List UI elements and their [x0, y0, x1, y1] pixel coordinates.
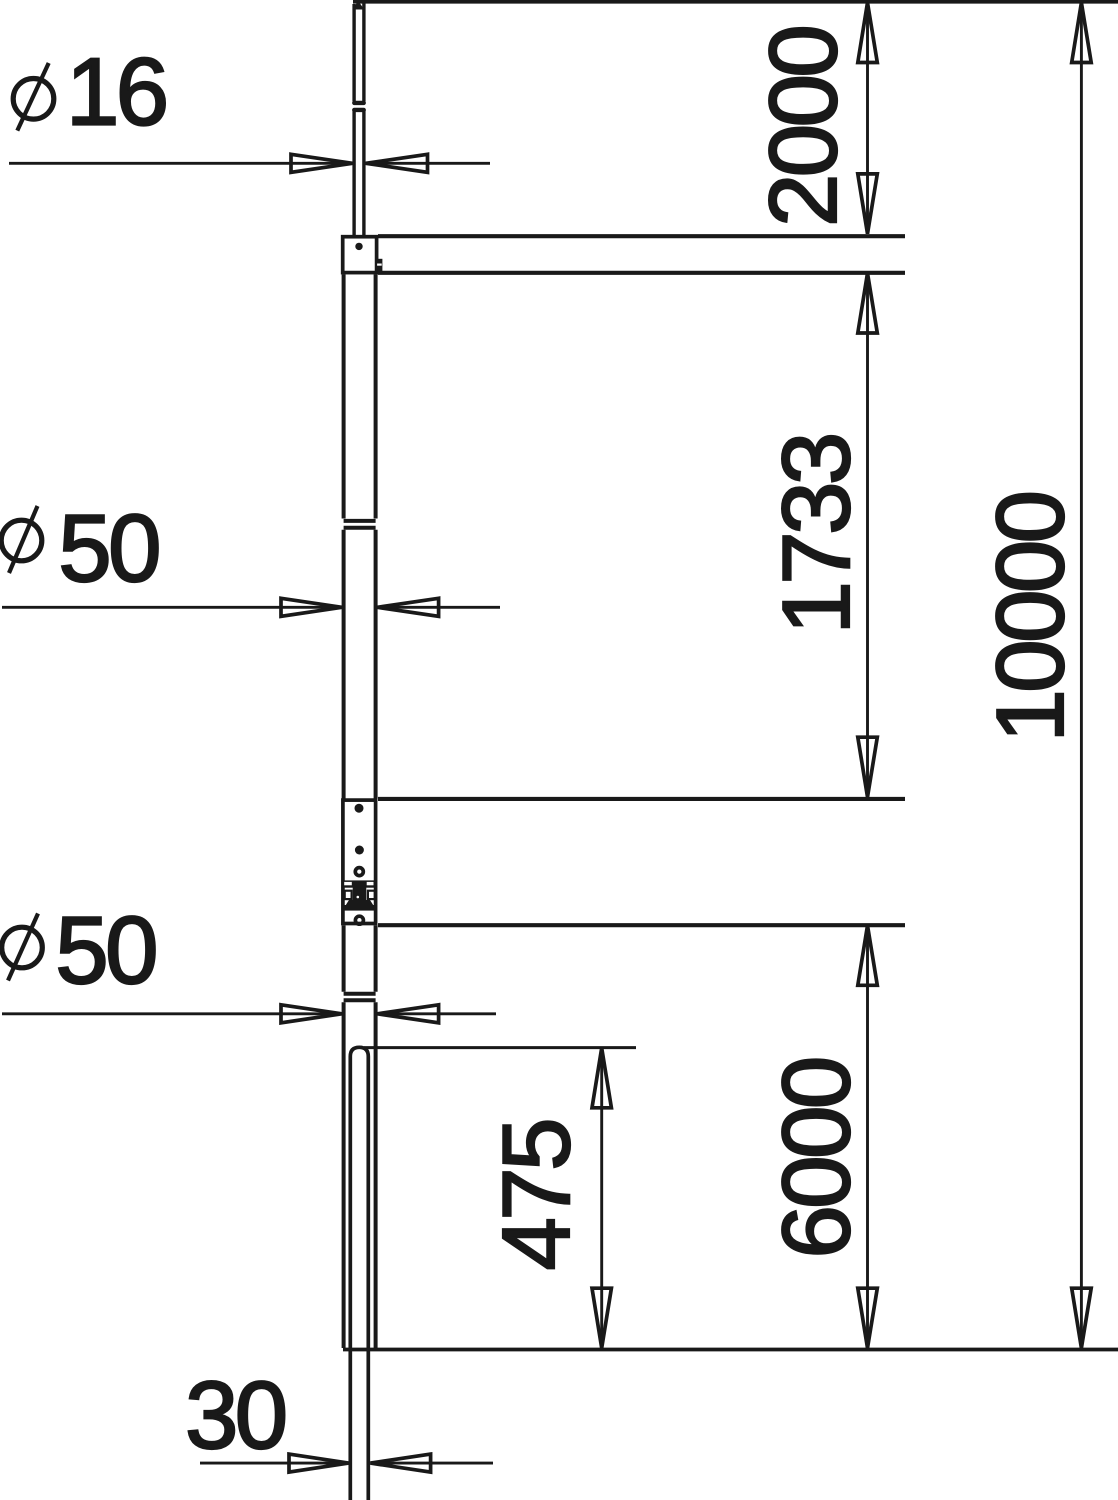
- svg-text:50: 50: [58, 495, 158, 602]
- svg-text:6000: 6000: [763, 1059, 870, 1258]
- svg-text:16: 16: [66, 39, 166, 146]
- svg-text:30: 30: [185, 1362, 285, 1469]
- svg-text:50: 50: [55, 897, 155, 1004]
- svg-text:475: 475: [483, 1121, 590, 1271]
- svg-text:1733: 1733: [763, 435, 870, 634]
- svg-text:2000: 2000: [750, 28, 857, 227]
- svg-text:10000: 10000: [977, 493, 1084, 742]
